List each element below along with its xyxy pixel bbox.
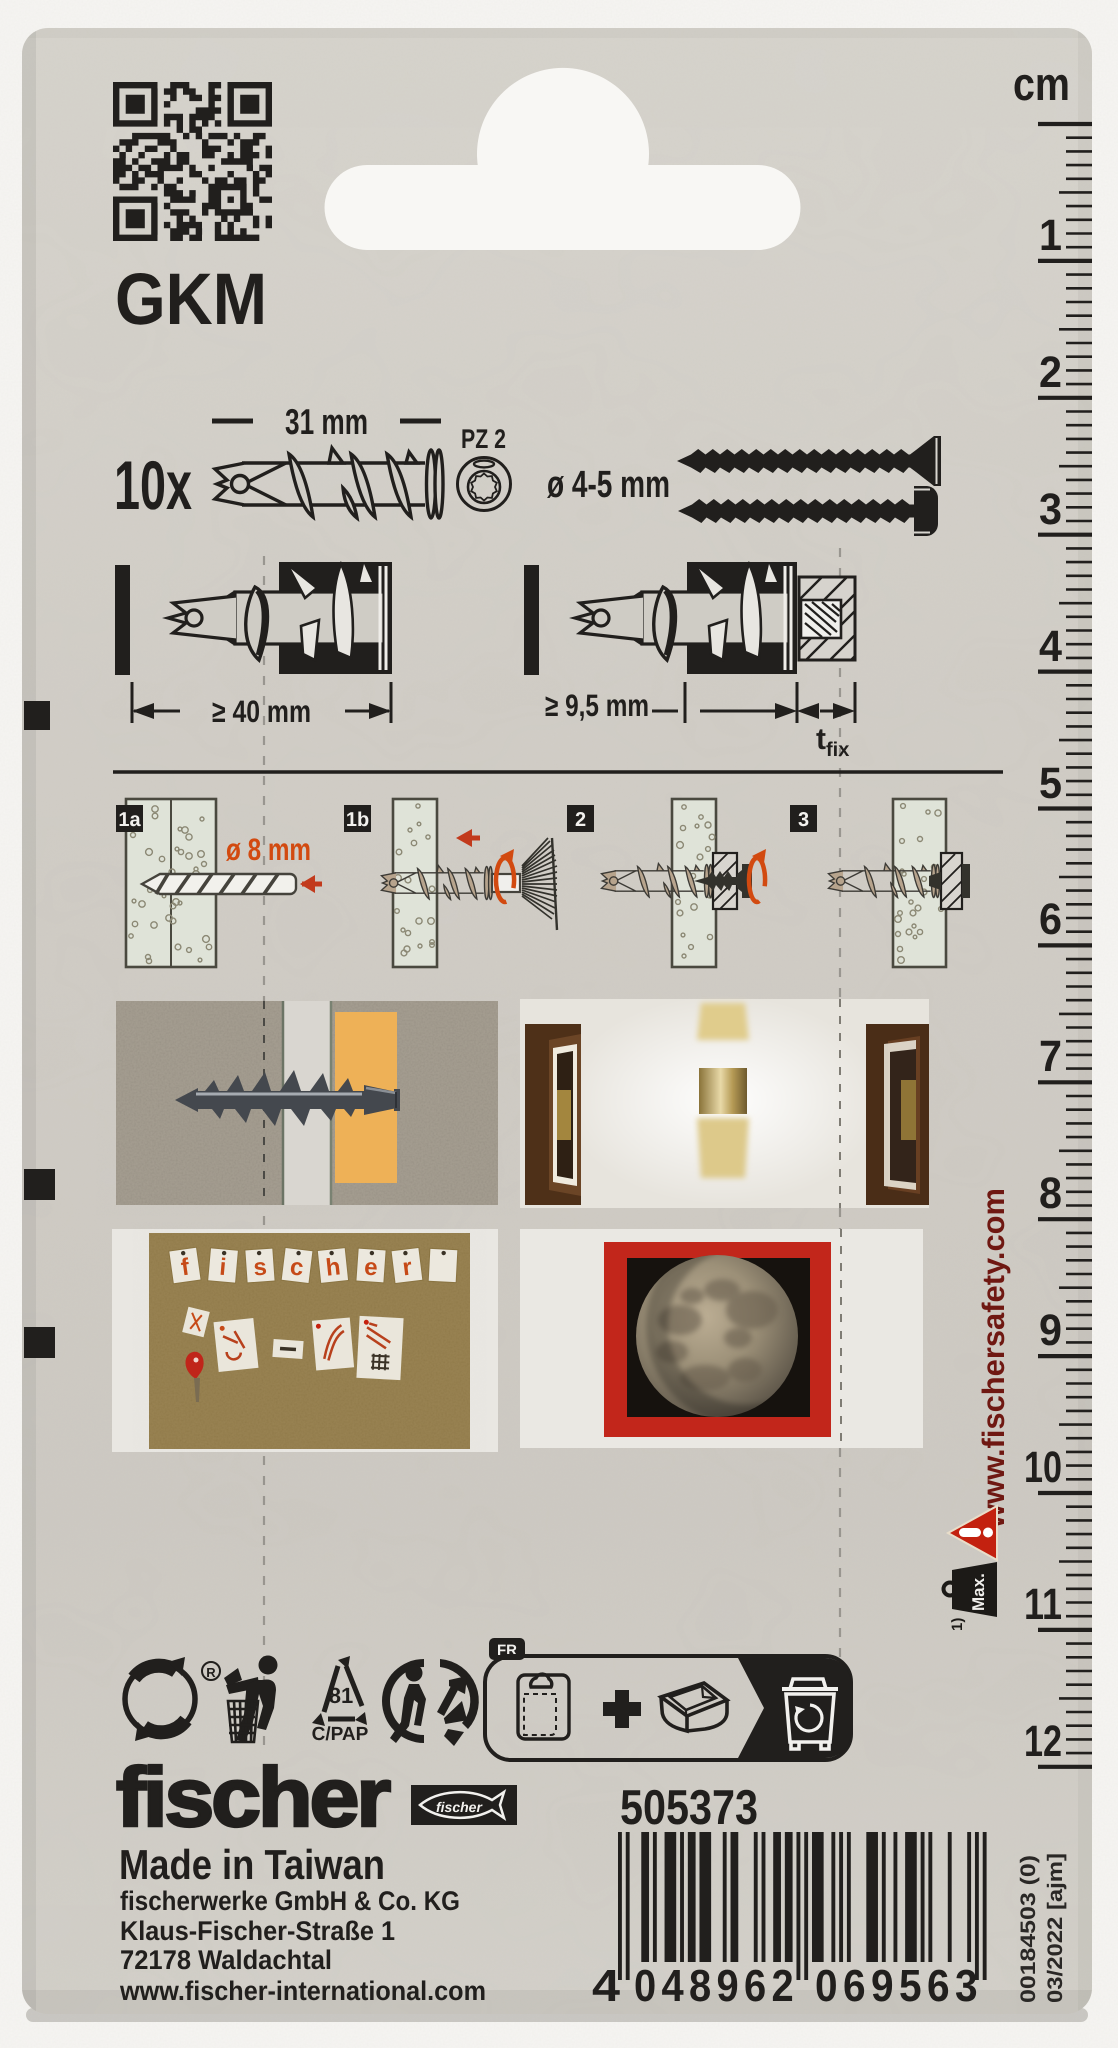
- svg-text:3: 3: [1039, 485, 1062, 534]
- svg-text:Klaus-Fischer-Straße 1: Klaus-Fischer-Straße 1: [120, 1916, 395, 1946]
- svg-text:03/2022 [ajm]: 03/2022 [ajm]: [1044, 1853, 1067, 2003]
- svg-text:6: 6: [1039, 895, 1062, 944]
- svg-text:≥ 40 mm: ≥ 40 mm: [212, 694, 311, 729]
- svg-text:1): 1): [949, 1618, 966, 1631]
- svg-text:PZ 2: PZ 2: [461, 424, 506, 454]
- svg-text:9: 9: [1039, 1306, 1062, 1355]
- svg-text:81: 81: [329, 1683, 353, 1708]
- svg-text:ø 8 mm: ø 8 mm: [226, 832, 311, 867]
- svg-text:cm: cm: [1013, 57, 1070, 110]
- svg-text:fischer: fischer: [116, 1750, 390, 1844]
- svg-text:10: 10: [1024, 1443, 1062, 1492]
- svg-text:7: 7: [1039, 1032, 1062, 1081]
- svg-text:3: 3: [798, 809, 809, 831]
- svg-text:Made in Taiwan: Made in Taiwan: [119, 1841, 385, 1888]
- svg-text:2: 2: [1039, 348, 1062, 397]
- svg-text:1: 1: [1039, 211, 1062, 260]
- svg-text:e: e: [363, 1254, 378, 1282]
- svg-text:069563: 069563: [815, 1960, 983, 2011]
- svg-text:72178 Waldachtal: 72178 Waldachtal: [120, 1945, 332, 1975]
- svg-text:Max.: Max.: [969, 1573, 988, 1611]
- svg-text:www.fischersafety.com: www.fischersafety.com: [976, 1188, 1011, 1529]
- svg-text:8: 8: [1039, 1169, 1062, 1218]
- svg-text:fix: fix: [826, 739, 849, 761]
- svg-text:GKM: GKM: [115, 259, 267, 340]
- svg-text:1b: 1b: [346, 809, 369, 831]
- svg-text:00184503 (0): 00184503 (0): [1017, 1855, 1040, 2003]
- svg-text:505373: 505373: [620, 1781, 758, 1835]
- svg-text:048962: 048962: [634, 1960, 799, 2011]
- svg-text:4: 4: [1039, 622, 1062, 671]
- svg-text:s: s: [252, 1254, 267, 1282]
- svg-text:R: R: [206, 1665, 216, 1680]
- svg-text:10x: 10x: [114, 447, 192, 524]
- svg-text:5: 5: [1039, 759, 1062, 808]
- svg-text:C/PAP: C/PAP: [312, 1724, 369, 1745]
- svg-text:www.fischer-international.com: www.fischer-international.com: [119, 1976, 486, 2006]
- svg-text:1a: 1a: [118, 809, 141, 831]
- svg-text:4: 4: [592, 1960, 620, 2011]
- svg-text:t: t: [816, 723, 826, 756]
- svg-text:fischerwerke GmbH & Co. KG: fischerwerke GmbH & Co. KG: [120, 1886, 460, 1916]
- svg-text:≥ 9,5 mm: ≥ 9,5 mm: [545, 688, 649, 723]
- svg-text:ø 4-5 mm: ø 4-5 mm: [547, 464, 670, 506]
- svg-text:12: 12: [1024, 1717, 1062, 1766]
- svg-text:2: 2: [575, 809, 586, 831]
- svg-text:h: h: [324, 1253, 341, 1281]
- svg-text:31 mm: 31 mm: [285, 401, 368, 442]
- svg-text:11: 11: [1024, 1580, 1062, 1629]
- svg-text:fischer: fischer: [436, 1799, 483, 1815]
